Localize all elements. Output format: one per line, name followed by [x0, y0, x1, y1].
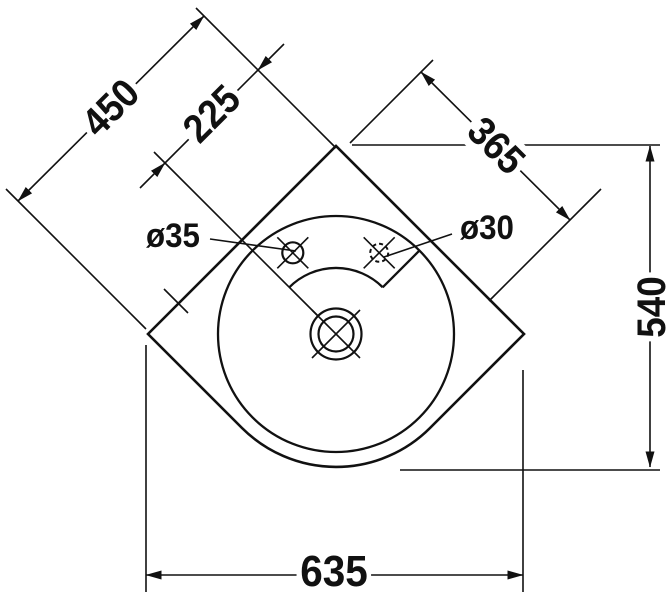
dim-label-540: 540 — [631, 273, 671, 342]
dim-225-tail-lower — [140, 163, 165, 188]
dim-450-ext-line-lower — [6, 189, 146, 329]
technical-drawing-canvas: 450 225 365 540 635 ø35 ø30 — [0, 0, 671, 600]
dim-label-hole-right-diameter: ø30 — [456, 210, 517, 246]
edge-tick-mark — [164, 289, 188, 313]
dim-365-ext-line-upper — [350, 60, 433, 143]
dim-label-hole-left-diameter: ø35 — [142, 218, 203, 254]
dim-label-635: 635 — [297, 549, 372, 595]
deck-front-arc — [289, 268, 382, 287]
drain-symbol — [311, 309, 362, 360]
dim-225-tail-upper — [258, 44, 284, 70]
tap-hole-right — [364, 237, 395, 268]
basin-outline — [148, 146, 524, 467]
tap-hole-left — [277, 237, 308, 268]
